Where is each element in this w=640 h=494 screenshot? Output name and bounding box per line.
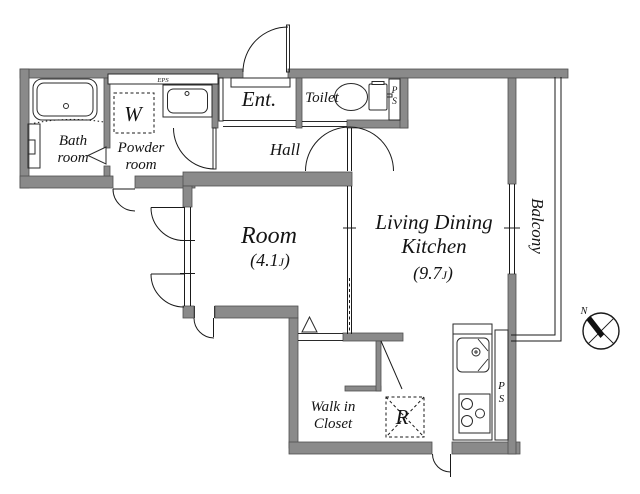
wall-room-south-a <box>183 306 194 318</box>
room-south-window-jambs <box>195 306 215 318</box>
room-south-casement-window <box>194 318 214 338</box>
label-balcony: Balcony <box>528 198 547 254</box>
room-casement-window-2 <box>151 274 184 307</box>
label-ldk-1: Living Dining <box>374 210 492 234</box>
bath-counter <box>28 124 40 168</box>
label-ps-kitchen-s: S <box>499 393 505 405</box>
label-wic-1: Walk in <box>311 399 356 415</box>
label-room: Room <box>240 223 297 249</box>
hall-ldk-door-leaf <box>348 128 352 171</box>
wall-bath-divider-lower <box>104 166 110 176</box>
label-ps-top-s: S <box>392 97 397 107</box>
wall-right-upper <box>508 78 516 184</box>
powder-casement-window <box>113 189 135 211</box>
label-ps-kitchen-p: P <box>497 380 505 392</box>
bathtub <box>33 79 97 120</box>
label-room-size: (4.1J) <box>250 250 290 271</box>
toilet-tank-lid <box>372 82 384 85</box>
toilet-bowl <box>335 84 368 111</box>
label-refrigerator: R <box>395 405 409 429</box>
label-bathroom-2: room <box>57 150 88 166</box>
wall-bottom-a <box>289 442 432 454</box>
entrance-left-partition <box>219 78 223 121</box>
entrance-door-sill <box>231 78 290 87</box>
label-ps-top-p: P <box>391 86 398 96</box>
vanity-faucet <box>185 92 189 96</box>
compass-needle <box>587 316 605 338</box>
wic-threshold <box>298 334 343 341</box>
bathtub-inner <box>37 83 93 116</box>
hall-door-arc <box>306 127 394 171</box>
wall-toilet-bottom <box>347 120 408 128</box>
label-powder-room-2: room <box>125 157 156 173</box>
room-west-window-frame <box>180 207 195 306</box>
floorplan-canvas: N Bath room Powder room W EPS Ent. Toile… <box>0 0 640 494</box>
label-hall: Hall <box>269 140 301 159</box>
entrance-door-leaf <box>287 25 290 72</box>
entrance-door-arc <box>243 27 288 72</box>
label-toilet: Toilet <box>305 90 339 106</box>
wall-wic-stub-v <box>376 341 381 391</box>
powder-door-arc <box>174 128 215 169</box>
entrance-step <box>223 121 296 127</box>
wall-bath-divider-upper <box>104 78 110 148</box>
wall-kitchen-nook <box>343 333 403 341</box>
label-bathroom-1: Bath <box>59 133 87 149</box>
wall-ps-right <box>400 78 408 128</box>
toilet-threshold <box>302 122 347 127</box>
room-casement-window-1 <box>151 208 184 241</box>
wall-room-south-b <box>215 306 298 318</box>
wic-door-leaf <box>381 341 402 389</box>
wall-wic-west <box>289 318 298 448</box>
label-ldk-size: (9.7J) <box>413 263 453 284</box>
label-wic-2: Closet <box>314 416 353 432</box>
toilet-tank <box>369 84 387 110</box>
wall-right-lower <box>508 274 516 454</box>
wall-bottom-west-a <box>20 176 113 188</box>
bathtub-drain <box>64 104 69 109</box>
wic-entry-marker <box>302 317 317 332</box>
thin-partitions <box>180 77 561 341</box>
compass-icon: N <box>580 306 619 349</box>
wall-room-west-upper <box>183 186 192 207</box>
label-entrance: Ent. <box>241 87 276 111</box>
label-ldk-2: Kitchen <box>400 234 466 258</box>
label-eps: EPS <box>156 77 169 84</box>
wall-top-right <box>288 69 568 78</box>
label-washer: W <box>124 102 144 126</box>
vanity-sink <box>168 89 208 113</box>
label-powder-room-1: Powder <box>117 140 165 156</box>
balcony-sliding-window <box>504 184 520 274</box>
compass-north-label: N <box>580 306 589 317</box>
kitchen-service-door <box>433 454 451 477</box>
wall-powder-right <box>212 78 218 128</box>
wall-hall-bottom <box>183 172 352 186</box>
bath-door-marker <box>88 147 106 164</box>
powder-door-leaf <box>213 128 216 169</box>
wall-entrance-right <box>296 78 302 128</box>
